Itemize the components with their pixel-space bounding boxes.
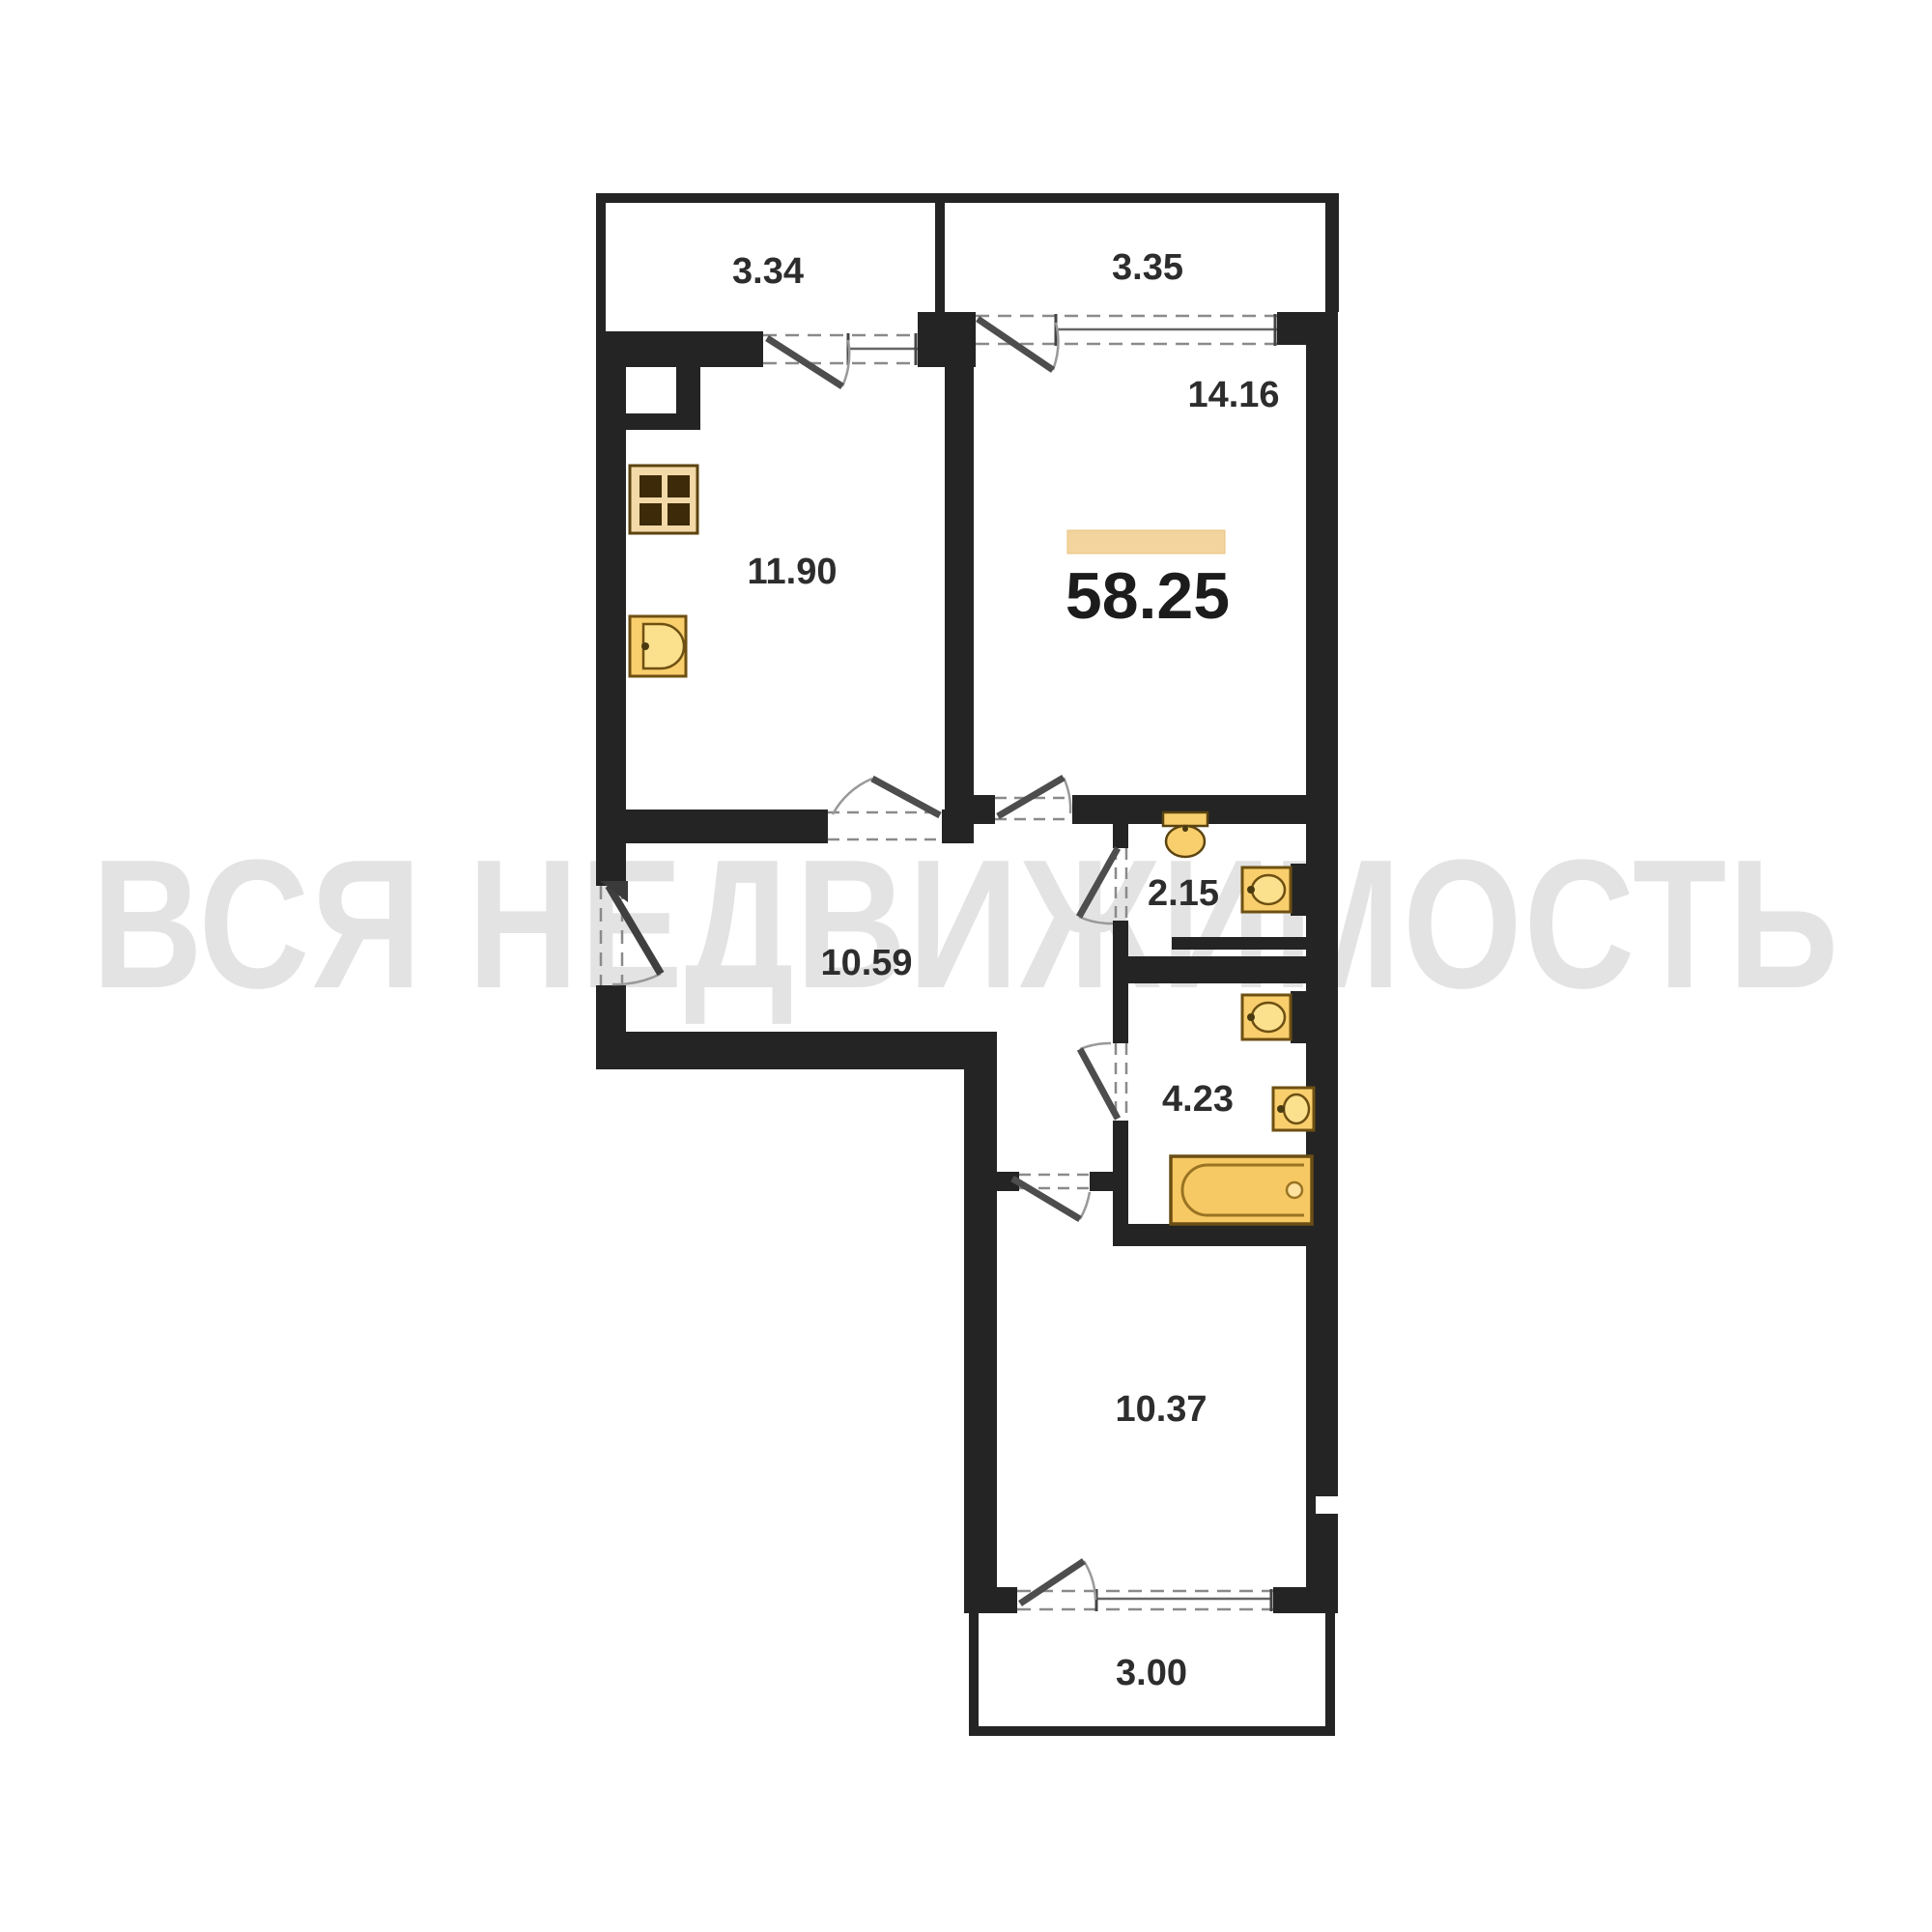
kitchen-door [833,779,940,815]
area-label-living-room: 14.16 [1187,375,1279,415]
wall-balcony-top [596,193,1339,203]
wall-livingroom-top-end [1277,312,1338,345]
kitchen-sink-icon [630,616,686,676]
bathroom-door [1080,1043,1118,1119]
wall-balcony3-left [969,1613,979,1736]
wall-bedroom-bottom-left [964,1587,1017,1613]
wall-wc-bottom [1113,956,1306,983]
wall-wc-duct [1291,864,1306,916]
wall-kitchen-living-divider [945,367,974,810]
area-label-balcony-bottom: 3.00 [1116,1653,1187,1693]
wc-sink-icon [1242,867,1291,912]
wall-balcony3-bottom [969,1726,1335,1736]
floor-plan: ВСЯ НЕДВИЖИМОСТЬ [0,0,1932,1932]
wall-wc-bottom-thin [1172,937,1306,950]
wall-right-outer-upper [1306,345,1338,824]
area-label-bathroom: 4.23 [1162,1079,1234,1120]
wall-bathroom-left-lower [1113,1121,1128,1224]
stove-icon [630,466,697,533]
bedroom-window [1017,1589,1273,1611]
bathtub-icon [1171,1156,1312,1224]
area-label-bedroom: 10.37 [1115,1389,1207,1430]
wall-bathroom-duct [1291,991,1306,1043]
wall-shaft-bottom [626,413,700,430]
wall-bedroom-door-stub-right [1090,1172,1113,1191]
wall-bedroom-bottom-right [1273,1587,1338,1613]
area-label-balcony-top-left: 3.34 [732,251,804,292]
wall-hallway-bottom [596,1032,997,1069]
wall-balcony-left [596,203,606,331]
total-area-accent-bar [1067,530,1225,554]
wall-wc-left-upper [1113,824,1128,848]
bedroom-balcony-door [1020,1561,1095,1604]
livingroom-window [976,314,1277,346]
wall-kitchen-bottom [626,810,828,843]
toilet-icon [1163,812,1207,857]
wall-balcony3-right [1325,1613,1335,1736]
wall-kitchen-bottom-right-block [942,810,974,843]
total-area-label: 58.25 [1065,559,1230,633]
area-label-balcony-top-right: 3.35 [1112,247,1183,288]
bathroom-sink-icon [1242,995,1291,1039]
corner-sink-icon [1273,1088,1314,1130]
watermark-text: ВСЯ НЕДВИЖИМОСТЬ [92,822,1840,1027]
bedroom-door [1012,1179,1090,1219]
wall-notch [1316,1496,1338,1514]
wall-bedroom-left [964,1032,997,1613]
wall-livingroom-bottom-left-stub [974,795,995,824]
area-label-wc: 2.15 [1148,873,1219,914]
floor-plan-page: ВСЯ НЕДВИЖИМОСТЬ [0,0,1932,1932]
area-label-hallway: 10.59 [820,943,912,983]
wall-right-outer-lower [1306,1246,1338,1613]
area-label-kitchen: 11.90 [748,552,838,592]
wall-bathroom-left-upper [1113,983,1128,1043]
wall-balcony-right [1325,203,1339,312]
wall-bathroom-bottom [1113,1224,1338,1246]
wall-left-outer-upper [596,331,626,886]
wall-top-center-block [918,312,976,367]
